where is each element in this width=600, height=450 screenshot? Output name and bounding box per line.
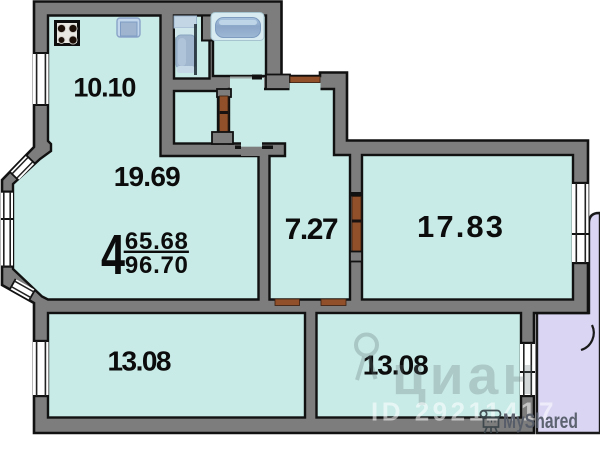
svg-text:4: 4: [101, 223, 125, 287]
svg-text:10.10: 10.10: [73, 72, 136, 102]
svg-text:13.08: 13.08: [108, 346, 172, 377]
svg-text:MyShared: MyShared: [503, 410, 578, 433]
svg-text:19.69: 19.69: [114, 161, 181, 192]
svg-text:17.83: 17.83: [417, 209, 503, 244]
svg-text:7.27: 7.27: [285, 213, 339, 246]
svg-text:96.70: 96.70: [125, 252, 188, 279]
